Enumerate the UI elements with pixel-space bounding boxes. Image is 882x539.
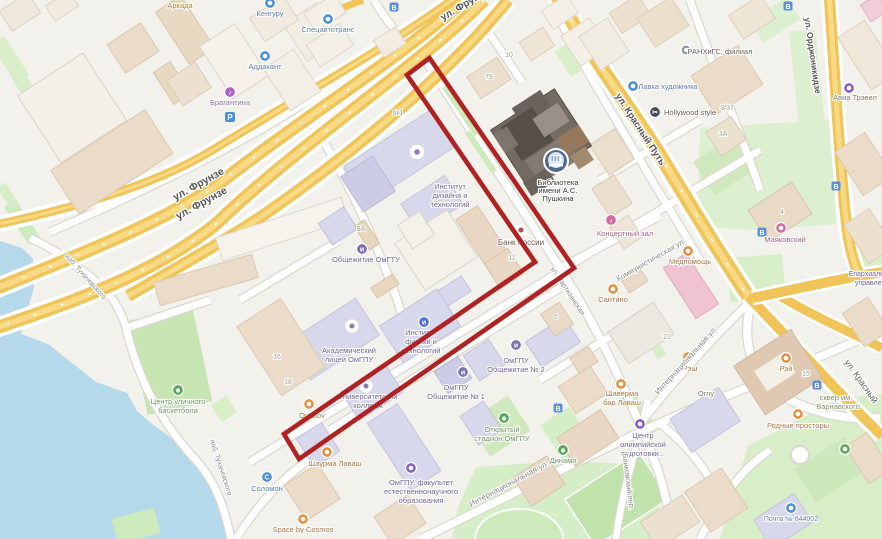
svg-text:Общежитие № 2: Общежитие № 2 [487,365,545,374]
svg-text:Епархиальное: Епархиальное [849,271,882,278]
svg-text:Академический: Академический [322,346,376,355]
svg-text:Центр: Центр [632,431,653,440]
svg-text:Открытый: Открытый [484,425,519,434]
svg-text:B: B [785,4,790,11]
svg-text:дизайна и: дизайна и [433,191,468,200]
svg-text:Space by Cosmos: Space by Cosmos [273,525,334,534]
svg-text:B: B [391,5,396,12]
svg-text:Пушкина: Пушкина [542,194,574,203]
svg-text:B: B [555,406,560,413]
svg-text:естественнонаучного: естественнонаучного [384,487,458,496]
svg-text:олимпийской: олимпийской [620,440,666,449]
svg-text:Маяковский: Маяковский [764,235,805,244]
svg-text:10: 10 [505,52,513,59]
svg-text:3А: 3А [719,131,728,138]
svg-text:♪: ♪ [609,217,613,224]
svg-text:Общежитие № 1: Общежитие № 1 [427,392,485,401]
svg-text:21: 21 [663,334,671,341]
svg-text:11: 11 [508,255,515,262]
svg-text:Аддакант: Аддакант [248,62,282,71]
svg-text:РАНХиГС, филиал: РАНХиГС, филиал [688,47,753,56]
svg-text:Концертный зал: Концертный зал [597,229,653,238]
svg-text:стадион ОмГПУ: стадион ОмГПУ [474,434,530,443]
svg-text:Брагантина: Брагантина [210,98,251,107]
svg-text:6: 6 [554,314,558,321]
svg-text:Шаверма: Шаверма [606,389,639,398]
svg-text:15: 15 [802,371,810,378]
svg-text:Варнавского: Варнавского [816,402,860,411]
svg-text:и: и [461,369,465,376]
svg-text:технологий: технологий [430,200,469,209]
svg-text:и: и [514,342,518,349]
svg-text:B: B [814,383,819,390]
svg-text:Hollywood style: Hollywood style [664,108,716,117]
svg-text:баскетбола: баскетбола [158,406,198,415]
svg-text:3/37: 3/37 [720,105,734,112]
svg-text:♪: ♪ [228,89,232,96]
svg-text:Рэй: Рэй [780,364,793,373]
svg-text:☻: ☻ [500,415,507,422]
svg-text:Спецавтотранс: Спецавтотранс [302,25,355,34]
svg-text:Авиа Трэвел: Авиа Трэвел [833,93,877,102]
svg-text:B: B [833,184,838,191]
svg-text:16: 16 [273,354,281,361]
svg-text:ОмГПУ: ОмГПУ [443,383,468,392]
svg-text:Шаурма Лаваш: Шаурма Лаваш [308,459,361,468]
svg-text:Лавка художника: Лавка художника [638,82,698,91]
svg-text:управление: управление [855,280,882,287]
svg-text:Динамо: Динамо [550,456,577,465]
svg-text:Институт: Институт [434,182,466,191]
svg-text:ОмГПУ: ОмГПУ [503,356,528,365]
svg-text:☻: ☻ [559,447,566,454]
svg-text:18: 18 [284,379,292,386]
svg-text:Почта № 644002: Почта № 644002 [764,516,818,523]
svg-text:Соломон: Соломон [251,484,283,493]
svg-text:Центр уличного: Центр уличного [151,397,206,406]
svg-text:6к1: 6к1 [393,110,404,117]
svg-text:Кенгуру: Кенгуру [257,9,284,18]
svg-text:Родные просторы: Родные просторы [767,421,829,430]
svg-text:79: 79 [485,74,493,81]
svg-text:лицей ОмГПУ: лицей ОмГПУ [325,355,374,364]
svg-text:C: C [264,474,269,481]
svg-text:сквер им.: сквер им. [820,393,853,402]
svg-text:☻: ☻ [174,387,181,394]
svg-text:и: и [422,319,426,326]
svg-text:P: P [227,113,233,122]
svg-text:ОмГПУ, факультет: ОмГПУ, факультет [389,478,454,487]
svg-text:9А: 9А [357,226,366,233]
svg-text:Медпомощь: Медпомощь [669,257,711,266]
svg-text:бар Лаваш: бар Лаваш [603,398,641,407]
svg-text:✂: ✂ [652,109,658,116]
svg-text:образования: образования [399,496,444,505]
svg-text:Аркада: Аркада [167,1,193,10]
svg-text:4: 4 [780,209,784,216]
svg-text:Сантино: Сантино [598,295,628,304]
svg-text:Общежитие ОмГТУ: Общежитие ОмГТУ [332,255,400,264]
svg-text:Orny: Orny [698,389,715,398]
svg-text:и: и [360,246,364,253]
